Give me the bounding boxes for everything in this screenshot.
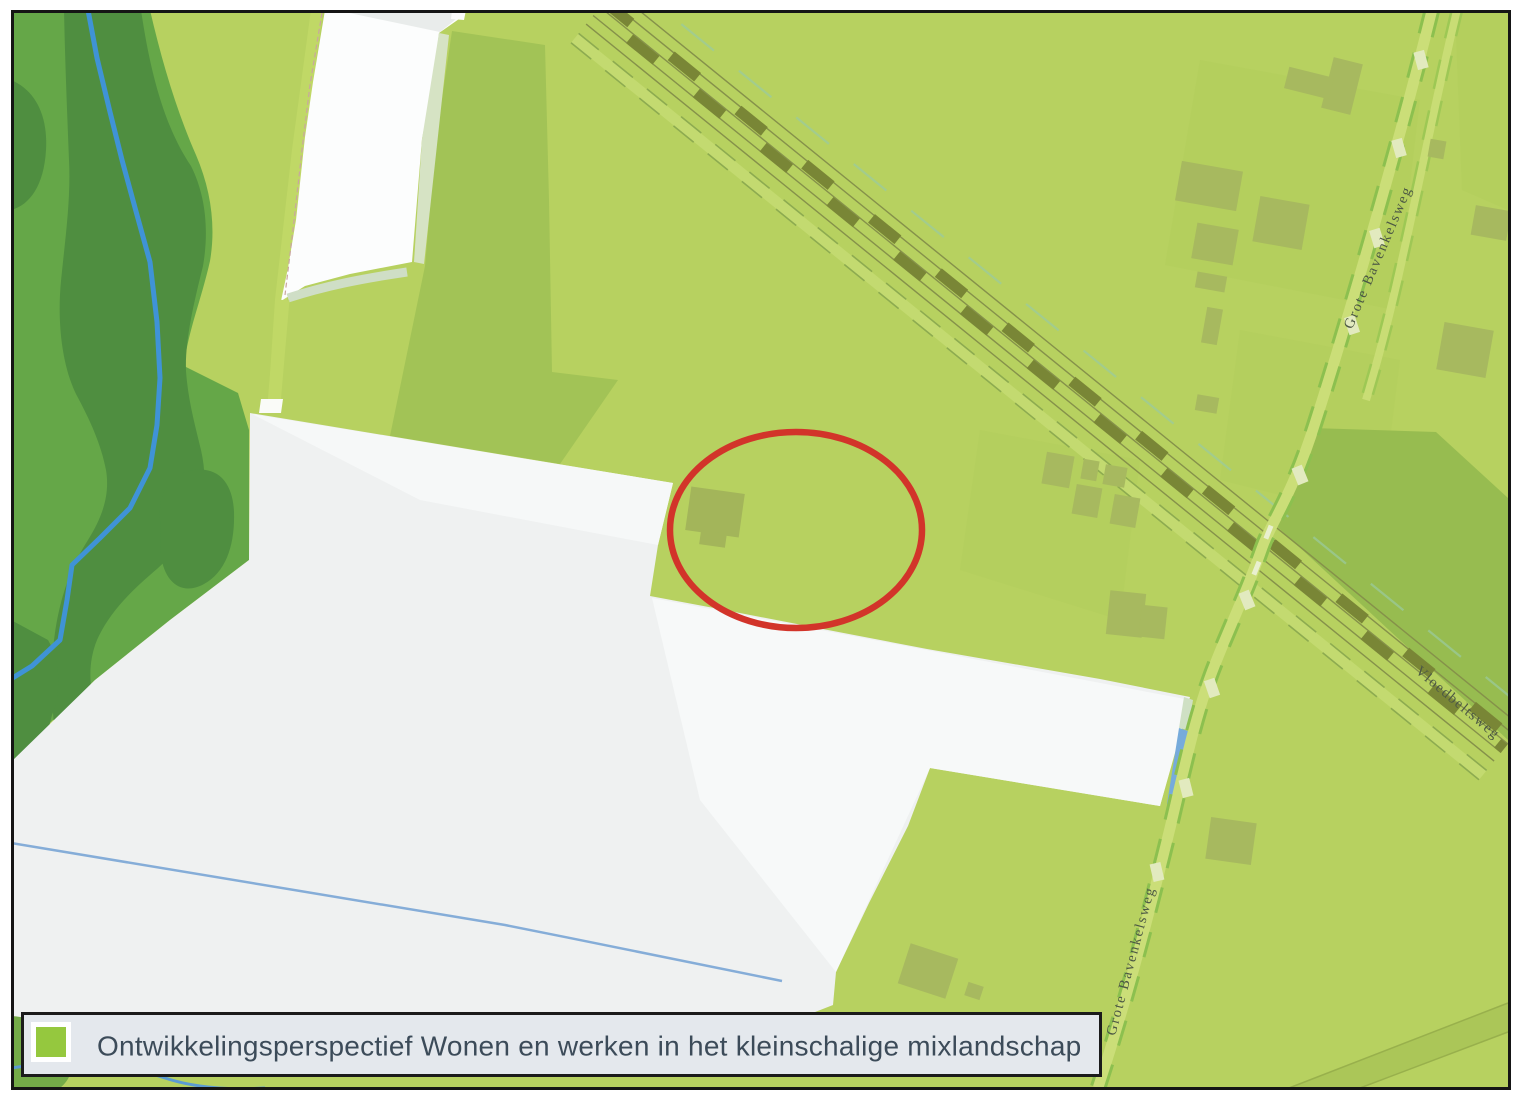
svg-text:Ontwikkelingsperspectief Wonen: Ontwikkelingsperspectief Wonen en werken… [97, 1031, 1082, 1062]
